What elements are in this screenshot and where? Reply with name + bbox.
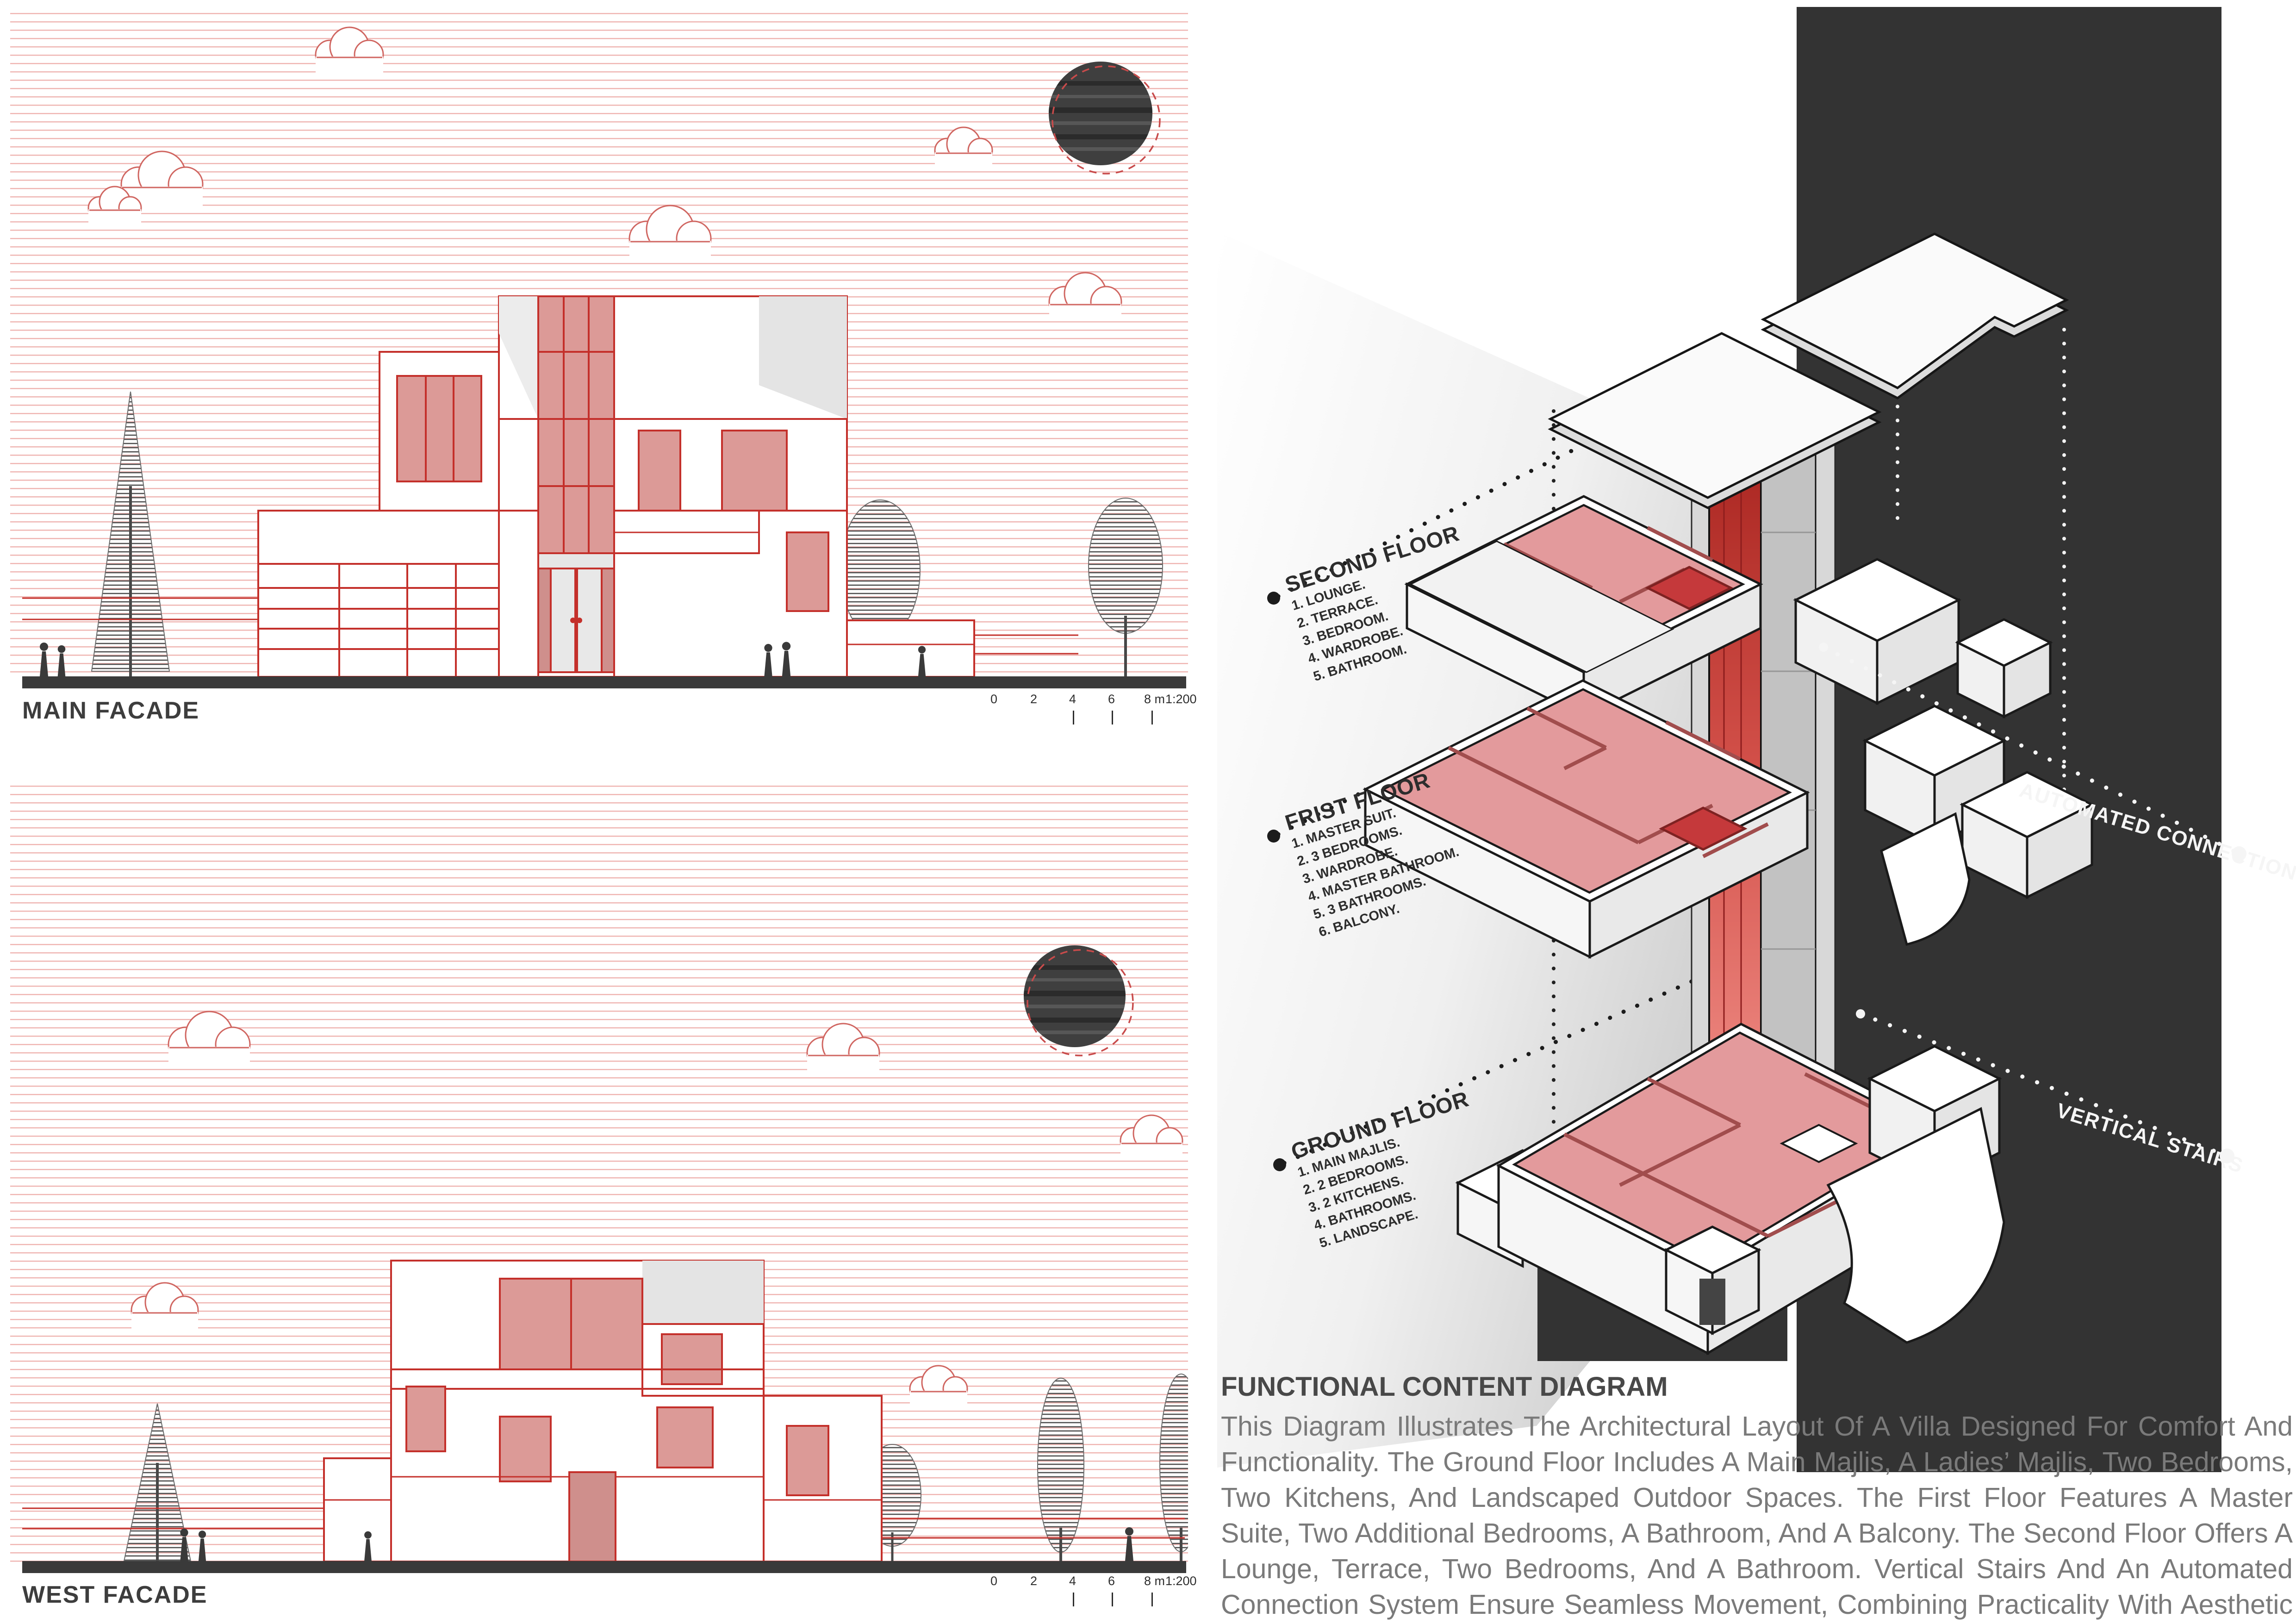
floor-bullet [1273,1158,1286,1171]
floor-bullet [1267,830,1280,843]
summary-block: FUNCTIONAL CONTENT DIAGRAM This Diagram … [1221,1371,2293,1624]
floor-bullet [1267,592,1280,605]
presentation-board: MAIN FACADE WEST FACADE 0 2 4 6 8 m 1:20… [0,0,2296,1624]
summary-title: FUNCTIONAL CONTENT DIAGRAM [1221,1371,2293,1402]
summary-body: This Diagram Illustrates The Architectur… [1221,1409,2293,1624]
